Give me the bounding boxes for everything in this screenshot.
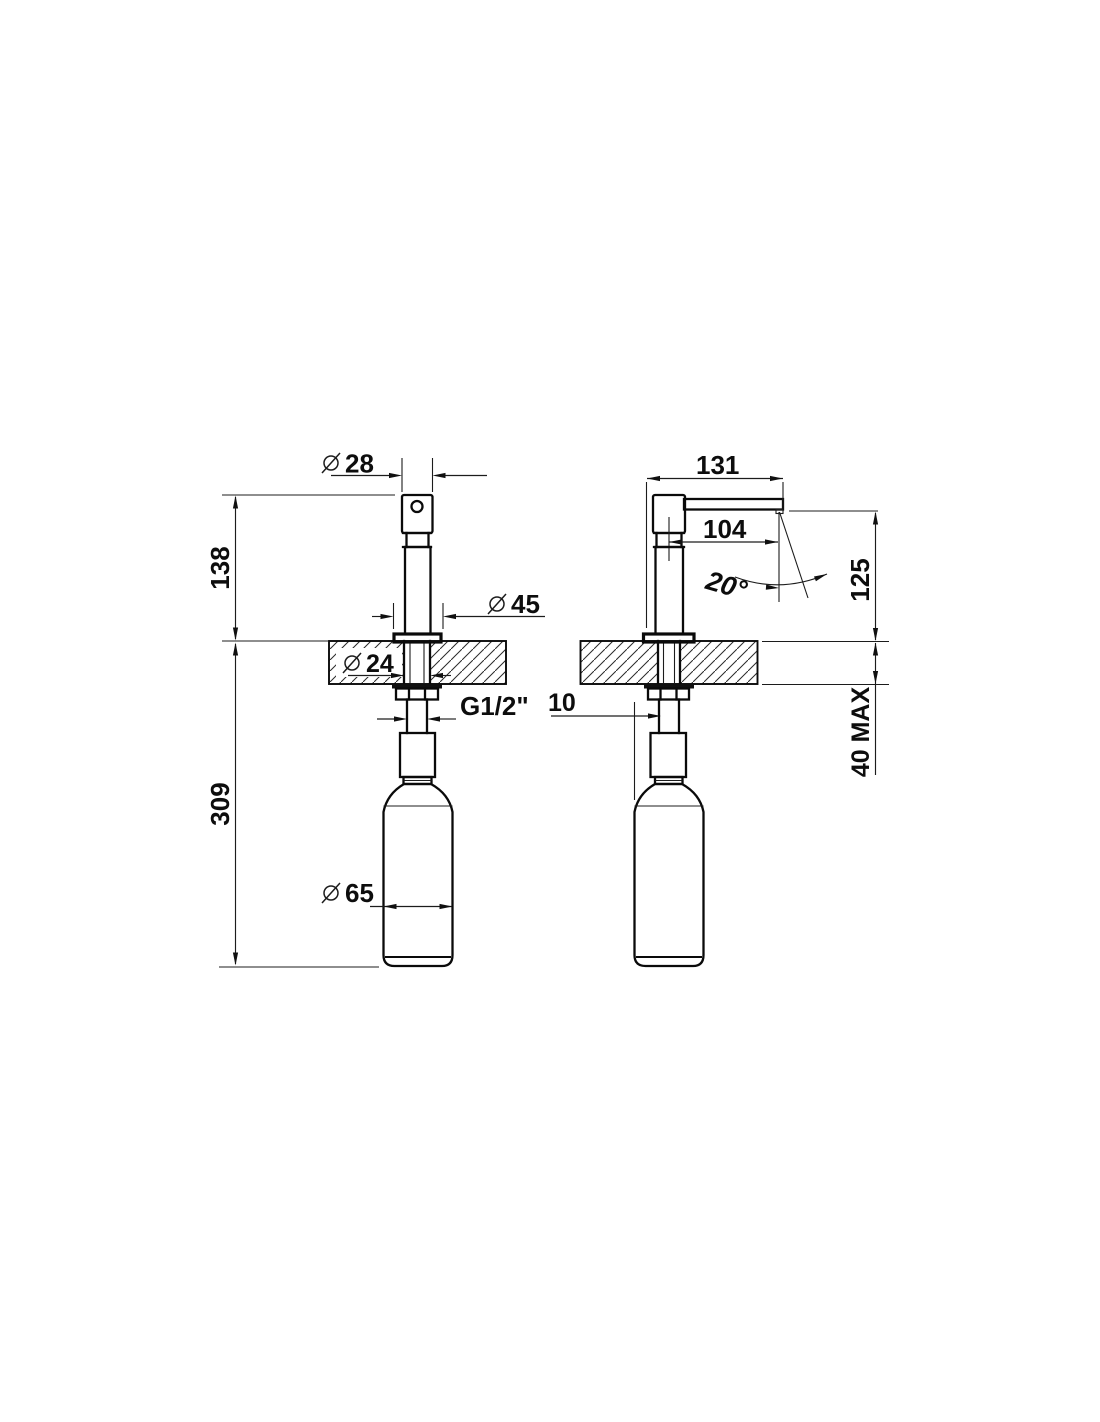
thread-size-label: G1/2" xyxy=(460,691,529,721)
hole-edge-offset-label: 10 xyxy=(548,689,576,717)
spout-reach-from-axis-label: 104 xyxy=(703,514,747,544)
spout-height-label: 125 xyxy=(845,558,875,601)
flange-diameter-label: 45 xyxy=(511,589,540,619)
soap-dispenser-installation-drawing: 28 138 45 xyxy=(0,0,1100,1422)
overall-spout-reach-label: 131 xyxy=(696,450,739,480)
head-diameter-label: 28 xyxy=(345,449,374,479)
technical-drawing-page: 28 138 45 xyxy=(0,0,1100,1422)
bottle-diameter-label: 65 xyxy=(345,878,374,908)
hole-diameter-label: 24 xyxy=(366,650,394,678)
counter-thickness-label: 40 MAX xyxy=(847,687,875,778)
height-above-counter-label: 138 xyxy=(205,546,235,589)
length-below-counter-label: 309 xyxy=(205,782,235,825)
